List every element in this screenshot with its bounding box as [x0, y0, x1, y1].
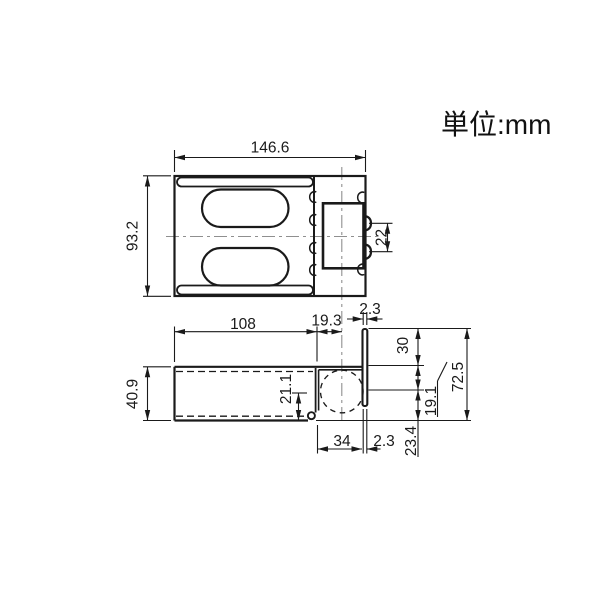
technical-drawing: 146.6 93.2 22 108 19.3 2.3 30 19.1 72.5 …	[0, 0, 600, 600]
unit-note: 単位:mm	[441, 109, 551, 140]
dim-plate-thickness-bottom: 2.3	[373, 433, 395, 450]
clip-hook	[310, 215, 317, 226]
dim-step-width: 34	[333, 433, 351, 450]
clip-hook	[358, 192, 365, 203]
leader-line	[438, 362, 448, 381]
dimension-lines	[148, 158, 468, 450]
dim-overall-width: 146.6	[251, 140, 290, 157]
dim-overall-height: 93.2	[125, 221, 142, 251]
side-view	[175, 329, 368, 421]
clip-hook	[310, 192, 317, 203]
mount-plate-window	[323, 203, 364, 268]
clip-hook	[310, 243, 317, 254]
slot-upper	[202, 190, 289, 228]
dim-center-offset: 19.3	[311, 313, 341, 330]
dim-body-length: 108	[230, 316, 256, 333]
top-flange-strip	[177, 178, 313, 187]
dim-plate-thickness-top: 2.3	[359, 301, 381, 318]
slot-lower	[202, 248, 289, 286]
dim-flange-lower-height: 23.4	[403, 426, 420, 457]
bottom-flange-strip	[177, 286, 313, 295]
extension-lines	[143, 150, 471, 457]
dim-center-from-bottom: 21.1	[278, 374, 295, 404]
dim-channel-height: 40.9	[125, 379, 142, 409]
hem-curl	[308, 412, 315, 419]
dim-flange-mid-height: 19.1	[423, 386, 440, 416]
dim-flange-upper-height: 30	[395, 337, 412, 355]
vertical-flange-plate	[363, 329, 368, 406]
dim-overall-side-height: 72.5	[450, 362, 467, 392]
clip-hook	[310, 265, 317, 276]
drawing-page: 146.6 93.2 22 108 19.3 2.3 30 19.1 72.5 …	[0, 0, 600, 600]
dim-emboss-pitch: 22	[374, 229, 391, 246]
